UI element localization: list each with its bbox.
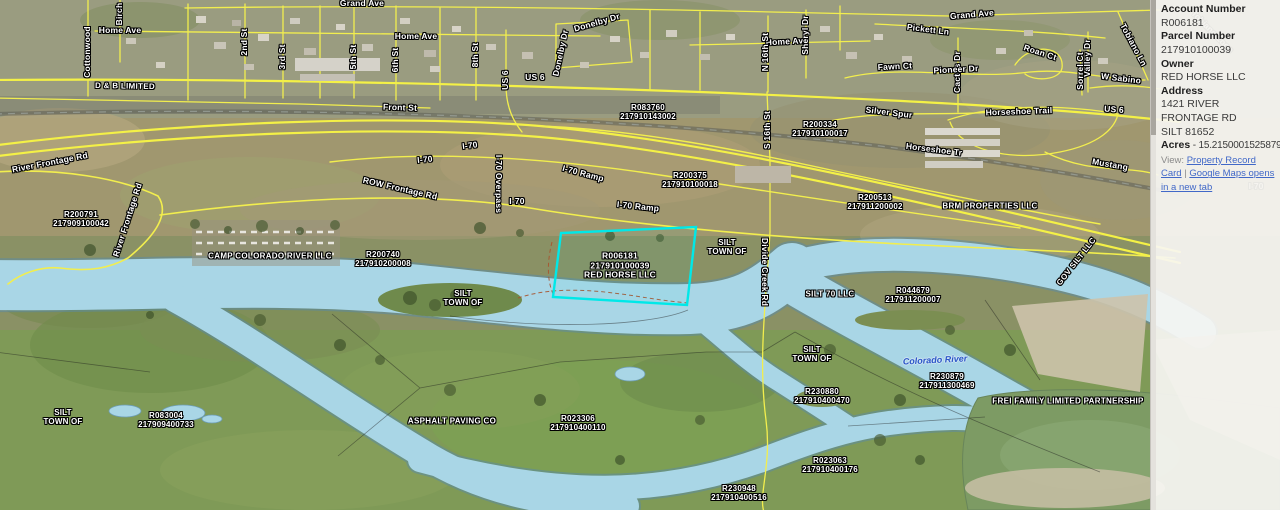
parcel-info-panel: Account NumberR006181Parcel Number217910… (1150, 0, 1280, 510)
acres-label: Acres (1161, 139, 1190, 151)
gis-parcel-map-app: Grand AveGrand AveHome AveCottonwoodBirc… (0, 0, 1280, 510)
field-label-2: Owner (1161, 58, 1277, 72)
panel-scrollbar[interactable] (1151, 0, 1156, 510)
panel-fields: Account NumberR006181Parcel Number217910… (1161, 3, 1277, 139)
map-viewport[interactable]: Grand AveGrand AveHome AveCottonwoodBirc… (0, 0, 1280, 510)
field-value-2: RED HORSE LLC (1161, 71, 1277, 85)
scrollbar-thumb[interactable] (1151, 0, 1156, 135)
field-value-3: 1421 RIVER FRONTAGE RD SILT 81652 (1161, 98, 1277, 139)
acres-value: - 15.2150001525879 (1190, 140, 1280, 151)
field-value-0: R006181 (1161, 17, 1277, 31)
field-value-1: 217910100039 (1161, 44, 1277, 58)
view-label: View: (1161, 155, 1187, 166)
acres-line: Acres - 15.2150001525879 (1161, 139, 1277, 153)
view-links: View: Property Record Card | Google Maps… (1161, 154, 1277, 194)
aerial-basemap (0, 0, 1280, 510)
selected-parcel-outline (553, 227, 696, 305)
field-label-1: Parcel Number (1161, 30, 1277, 44)
field-label-3: Address (1161, 85, 1277, 99)
field-label-0: Account Number (1161, 3, 1277, 17)
